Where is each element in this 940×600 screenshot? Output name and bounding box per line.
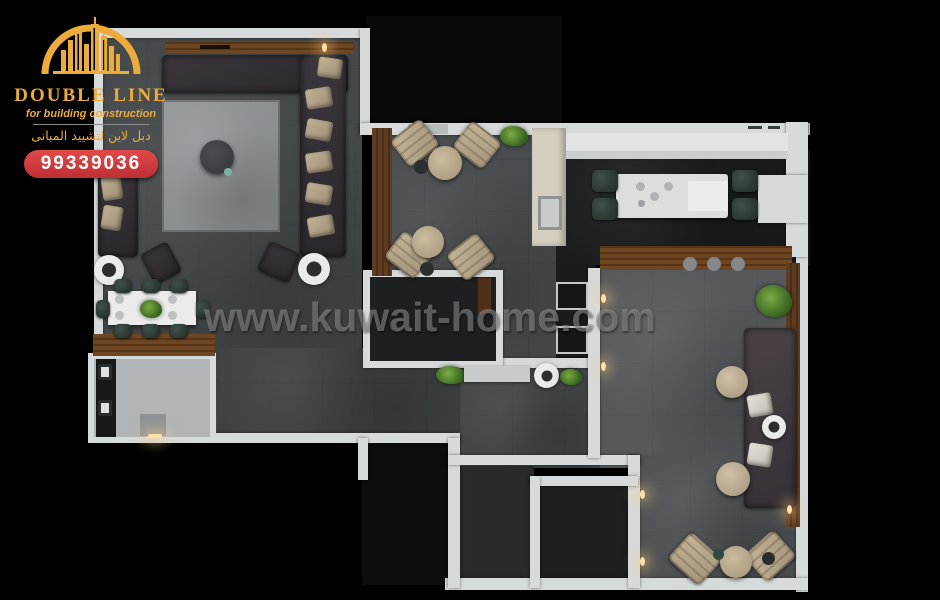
plate [115, 295, 124, 304]
small-plant-pot [713, 549, 724, 560]
round-coffee-table [720, 546, 752, 578]
table-centerpiece-plant [140, 300, 162, 318]
family-plant [756, 285, 792, 317]
outer-wall-bottom [445, 578, 808, 590]
pouf [716, 462, 750, 496]
small-side-table [414, 160, 428, 174]
plate [664, 182, 673, 191]
kitchen-chair [732, 198, 758, 220]
sofa-pillow [100, 205, 124, 232]
plate [638, 200, 645, 207]
decor-item [224, 168, 232, 176]
logo-divider [33, 124, 149, 125]
dining-chair [142, 279, 160, 293]
plate [650, 192, 659, 201]
console-item [200, 45, 230, 49]
hall-round-table [534, 363, 559, 388]
round-coffee-table [412, 226, 444, 258]
bar-stool [683, 257, 697, 271]
sofa-pillow [304, 118, 333, 142]
plate [636, 182, 645, 191]
company-logo: DOUBLE LINE for building construction دب… [14, 10, 168, 178]
wall-light [640, 557, 645, 566]
watermark-text: www.kuwait-home.com [204, 294, 656, 341]
hall-plant [436, 366, 466, 384]
sofa-pillow [305, 182, 334, 206]
closet-box [758, 175, 808, 223]
dark-tray [762, 552, 775, 565]
side-table [762, 415, 786, 439]
utility-door [140, 414, 166, 436]
bedroom-a-floor [362, 440, 450, 585]
logo-subtitle: for building construction [14, 108, 168, 120]
sofa-pillow [746, 442, 773, 467]
dining-chair [96, 300, 110, 318]
wall-bedroom-c-right [628, 455, 640, 588]
sofa-pillow [317, 56, 344, 79]
utility-fixture [98, 400, 112, 416]
small-side-table [420, 262, 434, 276]
sofa-pillow [746, 392, 773, 418]
kitchen-chair [592, 198, 618, 220]
hall-bench [464, 366, 530, 382]
wall-light [601, 362, 606, 371]
plate [168, 295, 177, 304]
phone-number-badge: 99339036 [24, 150, 159, 178]
wall-hall-south [212, 433, 460, 443]
pouf [716, 366, 748, 398]
wall-stub [358, 438, 368, 480]
sofa-pillow [100, 175, 123, 202]
logo-title: DOUBLE LINE [14, 85, 168, 107]
dining-chair [142, 324, 160, 338]
bedroom-c-floor [540, 486, 630, 584]
kitchen-chair [592, 170, 618, 192]
dining-chair [114, 279, 132, 293]
dining-chair [170, 324, 188, 338]
skyline-arch-icon [37, 10, 145, 78]
round-coffee-table [428, 146, 462, 180]
plate [115, 311, 124, 320]
floorplan-render: www.kuwait-home.com DOUBL [0, 0, 940, 600]
unlit-room-top-floor [366, 16, 562, 128]
window-dash-1 [748, 126, 762, 129]
bedroom-b-floor [458, 466, 534, 584]
utility-fixture [98, 364, 112, 380]
bar-stool [707, 257, 721, 271]
hall-plant [560, 369, 582, 385]
wall-light [787, 505, 792, 514]
wall-step [448, 455, 640, 465]
window-dash-2 [768, 126, 780, 129]
dining-chair [114, 324, 132, 338]
sofa-pillow [305, 86, 334, 110]
wall-bedroom-c-top [530, 476, 638, 486]
dining-chair [170, 279, 188, 293]
side-table [298, 253, 330, 285]
bar-stool [731, 257, 745, 271]
logo-arabic-text: دبل لاين لتشييد المبانى [14, 128, 168, 143]
wall-light [640, 490, 645, 499]
serving-tray [688, 181, 728, 211]
plate [168, 311, 177, 320]
kitchen-chair [732, 170, 758, 192]
coffee-machine [538, 196, 562, 230]
wall-bedroom-divider [530, 476, 540, 588]
potted-plant [500, 126, 528, 146]
door-light [148, 434, 162, 438]
wall-light [322, 43, 327, 52]
sofa-pillow [305, 150, 334, 173]
kitchen-counter-north [566, 133, 788, 159]
wall-living-right [360, 28, 370, 133]
